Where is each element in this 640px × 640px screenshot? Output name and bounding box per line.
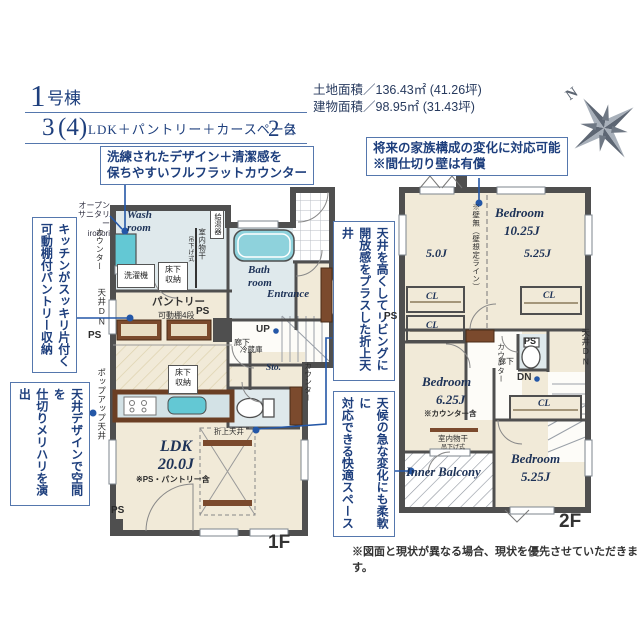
wall-assumption-note: ※壁無（壁想定ライン） — [471, 203, 480, 313]
header-rule-2 — [25, 143, 307, 144]
laundry-pole-label: 室内物干 — [197, 228, 206, 260]
popup-ceiling-label: ポップアップ天井 — [96, 368, 106, 440]
unit-suffix: 号棟 — [47, 89, 81, 109]
ldk-label: LDK 20.0J — [145, 438, 207, 475]
plan-paren: (4) — [58, 114, 87, 143]
callout-ceiling-design: 天井デザインで空間を 仕切りメリハリを演出 — [10, 382, 90, 506]
cl-label-3: CL — [543, 291, 555, 302]
callout-future-family: 将来の家族構成の変化に対応可能 ※間仕切り壁は有償 — [366, 137, 568, 176]
header-rule-1 — [25, 112, 307, 113]
laundry-pole-2f-sub-label: 吊下げ式 — [441, 445, 465, 452]
callout-pantry-storage: キッチンがスッキリ片付く 可動棚付パントリー収納 — [32, 217, 77, 373]
hallway-2f-label: 廊下 — [498, 357, 514, 366]
fridge-label: 冷蔵庫 — [240, 346, 263, 355]
land-area: 土地面積／136.43㎡ (41.26坪) — [313, 82, 482, 100]
inner-balcony-label: Inner Balcony — [406, 465, 481, 479]
water-heater-label: 給湯器 — [210, 210, 224, 239]
entrance-label: Entrance — [267, 288, 309, 301]
plan-number: 3 — [42, 114, 55, 143]
car-space-count: 2 — [268, 116, 280, 142]
cl-label-2: CL — [426, 321, 438, 332]
ceiling-dn-label: 天井DN — [96, 288, 106, 327]
cl-label-4: CL — [538, 399, 550, 410]
cl-label-1: CL — [426, 292, 438, 303]
floorplan-flyer: 1 号棟 3 (4) LDK＋パントリー＋カースペース 2 台 土地面積／136… — [0, 0, 640, 640]
open-sanitary-label: オープン サニタリー irodori — [72, 201, 110, 238]
floor-2f-tag: 2F — [559, 511, 581, 533]
bedroom1-label: Bedroom — [495, 206, 544, 221]
shelf-label: 可動棚4段 — [158, 311, 194, 320]
callout-flat-counter: 洗練されたデザイン＋清潔感を 保ちやすいフルフラットカウンター — [100, 146, 314, 185]
callout-inner-balcony: 天候の急な変化にも柔軟に 対応できる快適スペース — [333, 391, 395, 537]
hallway-1f-label: 廊下 — [234, 338, 250, 347]
disclaimer-note: ※図面と現状が異なる場合、現状を優先させていただきます。 — [352, 543, 640, 575]
bedroom2-note-label: ※カウンター含 — [424, 410, 477, 419]
wash-room-label: Wash room — [127, 209, 152, 234]
ceiling-dn-2f-label: 天井DN — [580, 328, 590, 367]
ps-2f-left-label: PS — [384, 311, 397, 323]
bedroom3-size-label: 5.25J — [521, 470, 550, 485]
bedroom3-label: Bedroom — [511, 452, 560, 467]
floor-1f-tag: 1F — [268, 532, 290, 554]
counter-left-label: カウンター — [95, 228, 104, 271]
oriage-ceiling-label: 折上天井 — [212, 428, 246, 437]
bath-room-label: Bath room — [248, 264, 272, 289]
bedroom1-left-size-label: 5.0J — [426, 247, 447, 261]
car-space-unit: 台 — [283, 123, 296, 138]
bedroom2-label: Bedroom — [422, 375, 471, 390]
ps-pantry-label: PS — [196, 306, 209, 318]
unit-number: 1 — [30, 78, 46, 114]
counter-right-1f-label: カウンター — [303, 362, 312, 402]
callout-oriage-ceiling: 天井を高くしてリビングに 開放感をプラスした折上天井 — [333, 221, 395, 381]
sto-label: Sto. — [266, 363, 281, 374]
ldk-note-label: ※PS・パントリー含 — [136, 475, 210, 484]
ps-bottom-label: PS — [111, 505, 124, 517]
bedroom1-right-size-label: 5.25J — [524, 247, 551, 261]
underfloor-storage-label-1: 床下 収納 — [158, 262, 188, 291]
laundry-pole-sub-label: 吊下げ式 — [186, 236, 193, 262]
building-area: 建物面積／98.95㎡ (31.43坪) — [313, 99, 475, 117]
dn-label: DN — [517, 372, 531, 384]
laundry-pole-2f-label: 室内物干 — [438, 435, 468, 444]
bedroom1-size-label: 10.25J — [504, 224, 540, 239]
up-label: UP — [256, 324, 270, 336]
underfloor-storage-label-2: 床下 収納 — [168, 365, 198, 394]
washer-label: 洗濯機 — [117, 264, 155, 288]
plan-description: LDK＋パントリー＋カースペース — [88, 123, 298, 138]
ps-toilet-2f-label: PS — [524, 336, 536, 346]
ps-left-label: PS — [88, 330, 101, 342]
bedroom2-size-label: 6.25J — [436, 393, 465, 408]
